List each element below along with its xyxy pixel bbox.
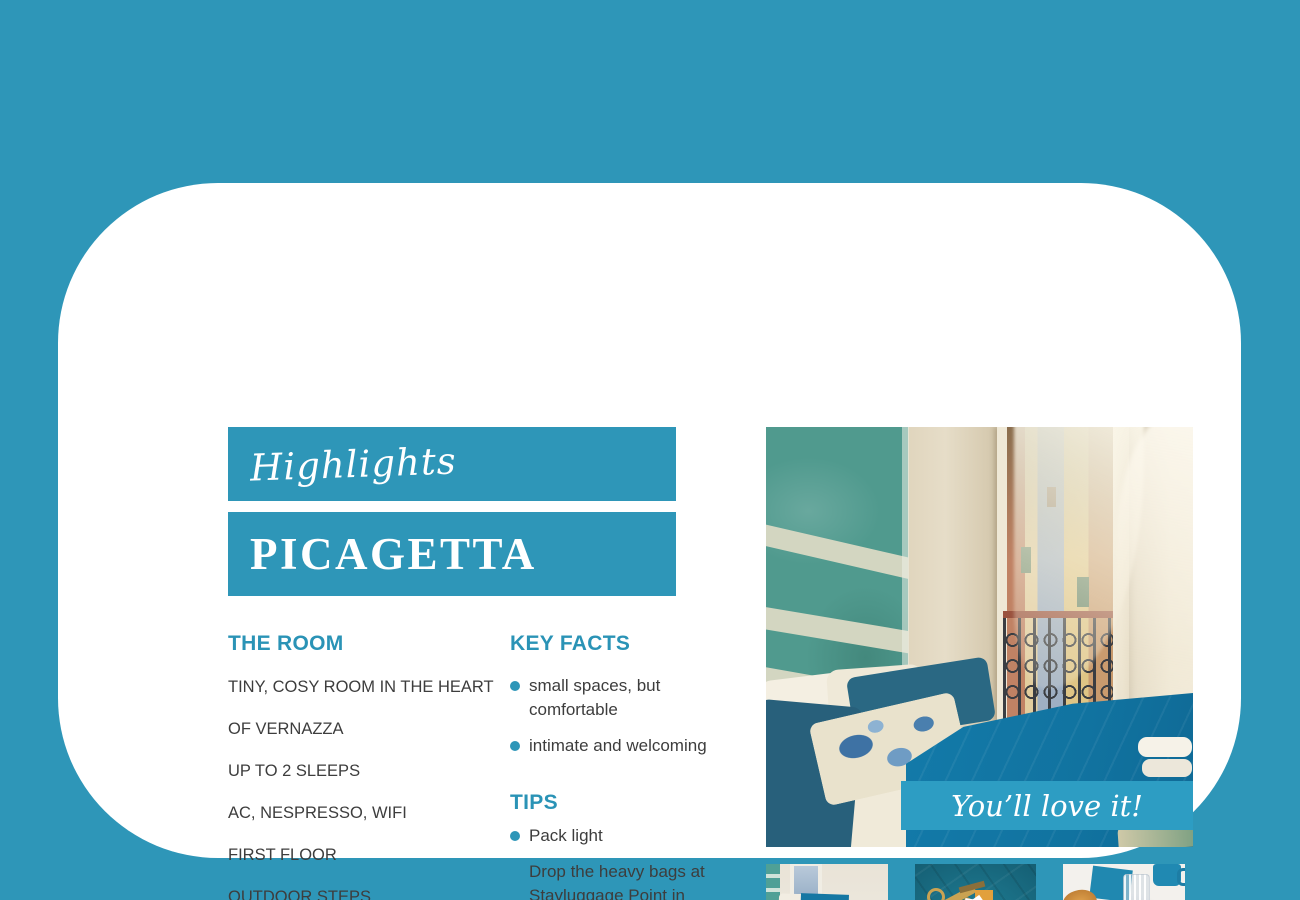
thumbnail-keys-keychain <box>915 864 1036 900</box>
key-fact-text: small spaces, but comfortable <box>529 674 728 722</box>
tip-item: Pack light <box>510 824 728 848</box>
key-fact-item: small spaces, but comfortable <box>510 674 728 722</box>
highlights-banner: Highlights <box>228 427 676 501</box>
key-fact-item: intimate and welcoming <box>510 734 728 758</box>
property-title: PICAGETTA <box>250 528 537 580</box>
mini-teal-bed <box>799 893 849 900</box>
room-feature: UP TO 2 SLEEPS <box>228 762 494 804</box>
tip-item: Drop the heavy bags at Stayluggage Point… <box>510 860 728 900</box>
room-feature-list: TINY, COSY ROOM IN THE HEART OF VERNAZZA… <box>228 678 494 900</box>
key-fact-text: intimate and welcoming <box>529 734 707 758</box>
key-facts-list: small spaces, but comfortable intimate a… <box>510 674 728 770</box>
folded-towel <box>1142 759 1192 777</box>
content-card: Highlights PICAGETTA THE ROOM TINY, COSY… <box>58 183 1241 858</box>
key-facts-heading: KEY FACTS <box>510 632 630 656</box>
photo-caption-text: You’ll love it! <box>951 789 1143 823</box>
title-banner: PICAGETTA <box>228 512 676 596</box>
bullet-dot-icon <box>510 741 520 751</box>
room-feature: TINY, COSY ROOM IN THE HEART <box>228 678 494 720</box>
bullet-dot-icon <box>510 681 520 691</box>
room-feature: AC, NESPRESSO, WIFI <box>228 804 494 846</box>
room-feature: FIRST FLOOR <box>228 846 494 888</box>
tip-text: Drop the heavy bags at Stayluggage Point… <box>529 860 728 900</box>
tip-text: Pack light <box>529 824 603 848</box>
the-room-heading: THE ROOM <box>228 632 344 656</box>
key-bow <box>927 888 945 900</box>
mini-striped-wall <box>766 864 780 900</box>
bullet-dot-icon <box>510 831 520 841</box>
room-feature: OF VERNAZZA <box>228 720 494 762</box>
photo-caption-banner: You’ll love it! <box>901 781 1193 830</box>
drinking-glass <box>1123 874 1150 900</box>
folded-towel <box>1138 737 1192 757</box>
wall-stripe <box>766 606 908 657</box>
tips-heading: TIPS <box>510 791 558 815</box>
mug-handle <box>1177 868 1185 886</box>
tips-list: Pack light Drop the heavy bags at Staylu… <box>510 824 728 900</box>
page-background: Highlights PICAGETTA THE ROOM TINY, COSY… <box>0 0 1300 900</box>
thumbnail-breakfast-table <box>1063 864 1185 900</box>
main-photo-bedroom: You’ll love it! <box>766 427 1193 847</box>
bullet-dot-icon <box>510 867 520 877</box>
highlights-text: Highlights <box>249 439 457 489</box>
room-feature: OUTDOOR STEPS <box>228 888 494 900</box>
thumbnail-room-overhead <box>766 864 888 900</box>
wall-stripe <box>766 523 908 583</box>
